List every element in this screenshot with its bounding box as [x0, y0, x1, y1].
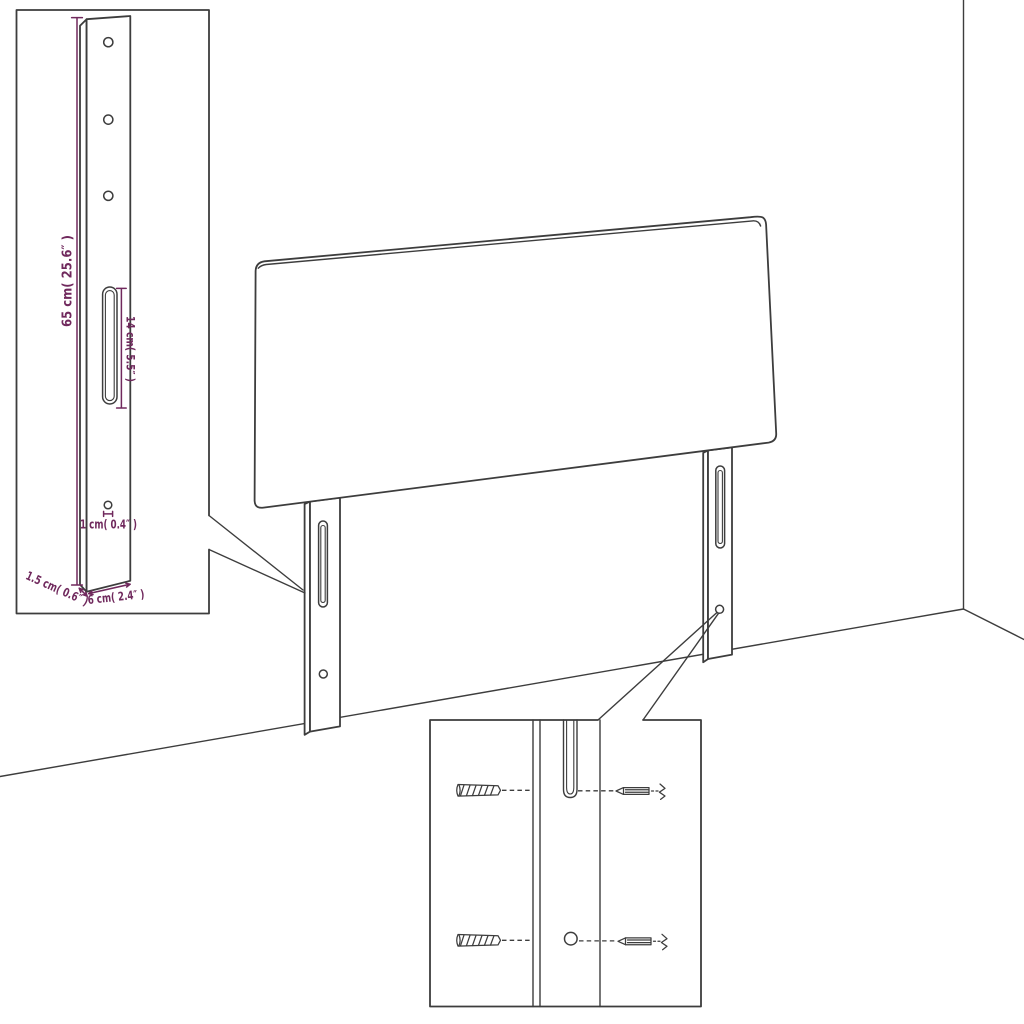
leg-detail-hole-top [104, 38, 113, 47]
height-dimension-label: 65 cm( 25.6″ ) [61, 235, 76, 327]
diagram-canvas: 65 cm( 25.6″ ) 14 cm( 5.5″ ) 1 cm( 0.4″ … [0, 0, 1024, 1024]
right-leg-slot-inner [718, 471, 722, 544]
headboard-outline [255, 217, 777, 508]
left-leg-hole [319, 670, 327, 678]
leg-detail-drawing [80, 16, 130, 592]
screw-detail-inset [430, 613, 719, 1007]
slot-dimension-label: 14 cm( 5.5″ ) [124, 316, 138, 382]
floor-line-right [964, 609, 1024, 640]
leg-detail-hole-middle [104, 115, 113, 124]
leg-inset-callout-line-lower [209, 550, 305, 594]
screw-inset-hole [565, 932, 578, 945]
screw-inset-callout-line-right [643, 613, 719, 720]
leg-detail-hole-bottom [104, 191, 113, 200]
screw-inset-callout-line-left [598, 613, 717, 720]
leg-inset-callout-line-upper [209, 516, 303, 591]
hole-dimension-label: 1 cm( 0.4″ ) [80, 518, 137, 532]
headboard-assembly-diagram: 65 cm( 25.6″ ) 14 cm( 5.5″ ) 1 cm( 0.4″ … [0, 0, 1024, 1024]
headboard-left-leg [305, 498, 340, 735]
headboard-panel [255, 217, 777, 508]
leg-detail-side-face [80, 19, 87, 592]
screw-inset-background [430, 720, 701, 1007]
leg-detail-slot-inner [105, 291, 114, 401]
leg-detail-small-hole [104, 501, 112, 509]
left-leg-slot-inner [321, 526, 325, 603]
